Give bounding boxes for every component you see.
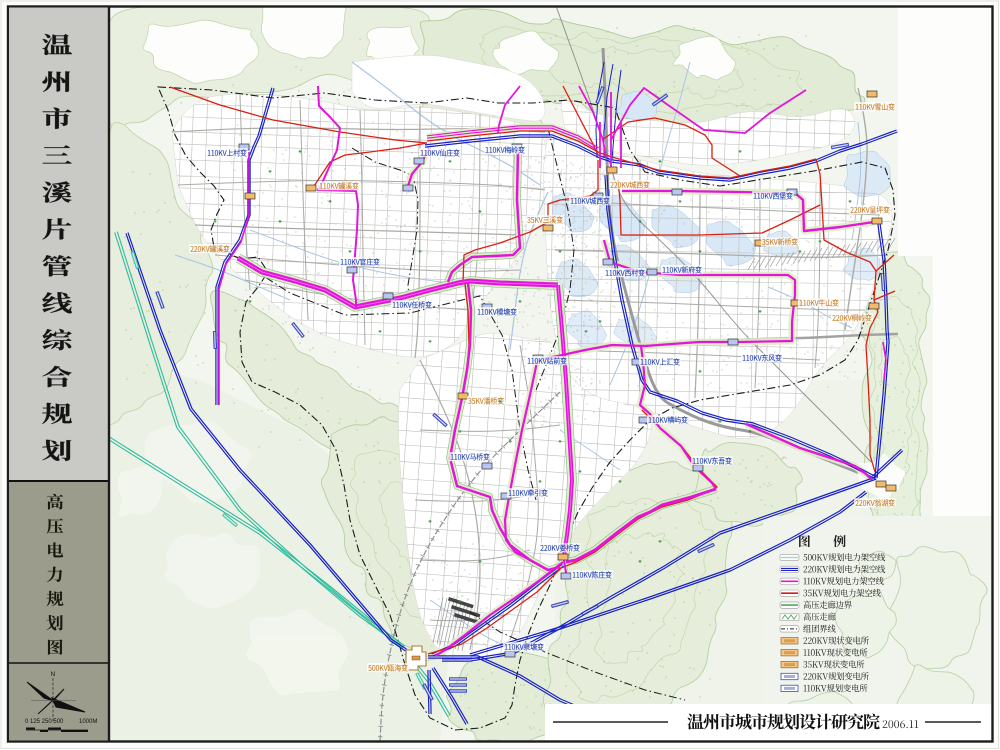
- svg-text:N: N: [51, 671, 56, 678]
- svg-text:0 125 250 500: 0 125 250 500: [25, 719, 64, 725]
- svg-text:1000M: 1000M: [79, 719, 97, 725]
